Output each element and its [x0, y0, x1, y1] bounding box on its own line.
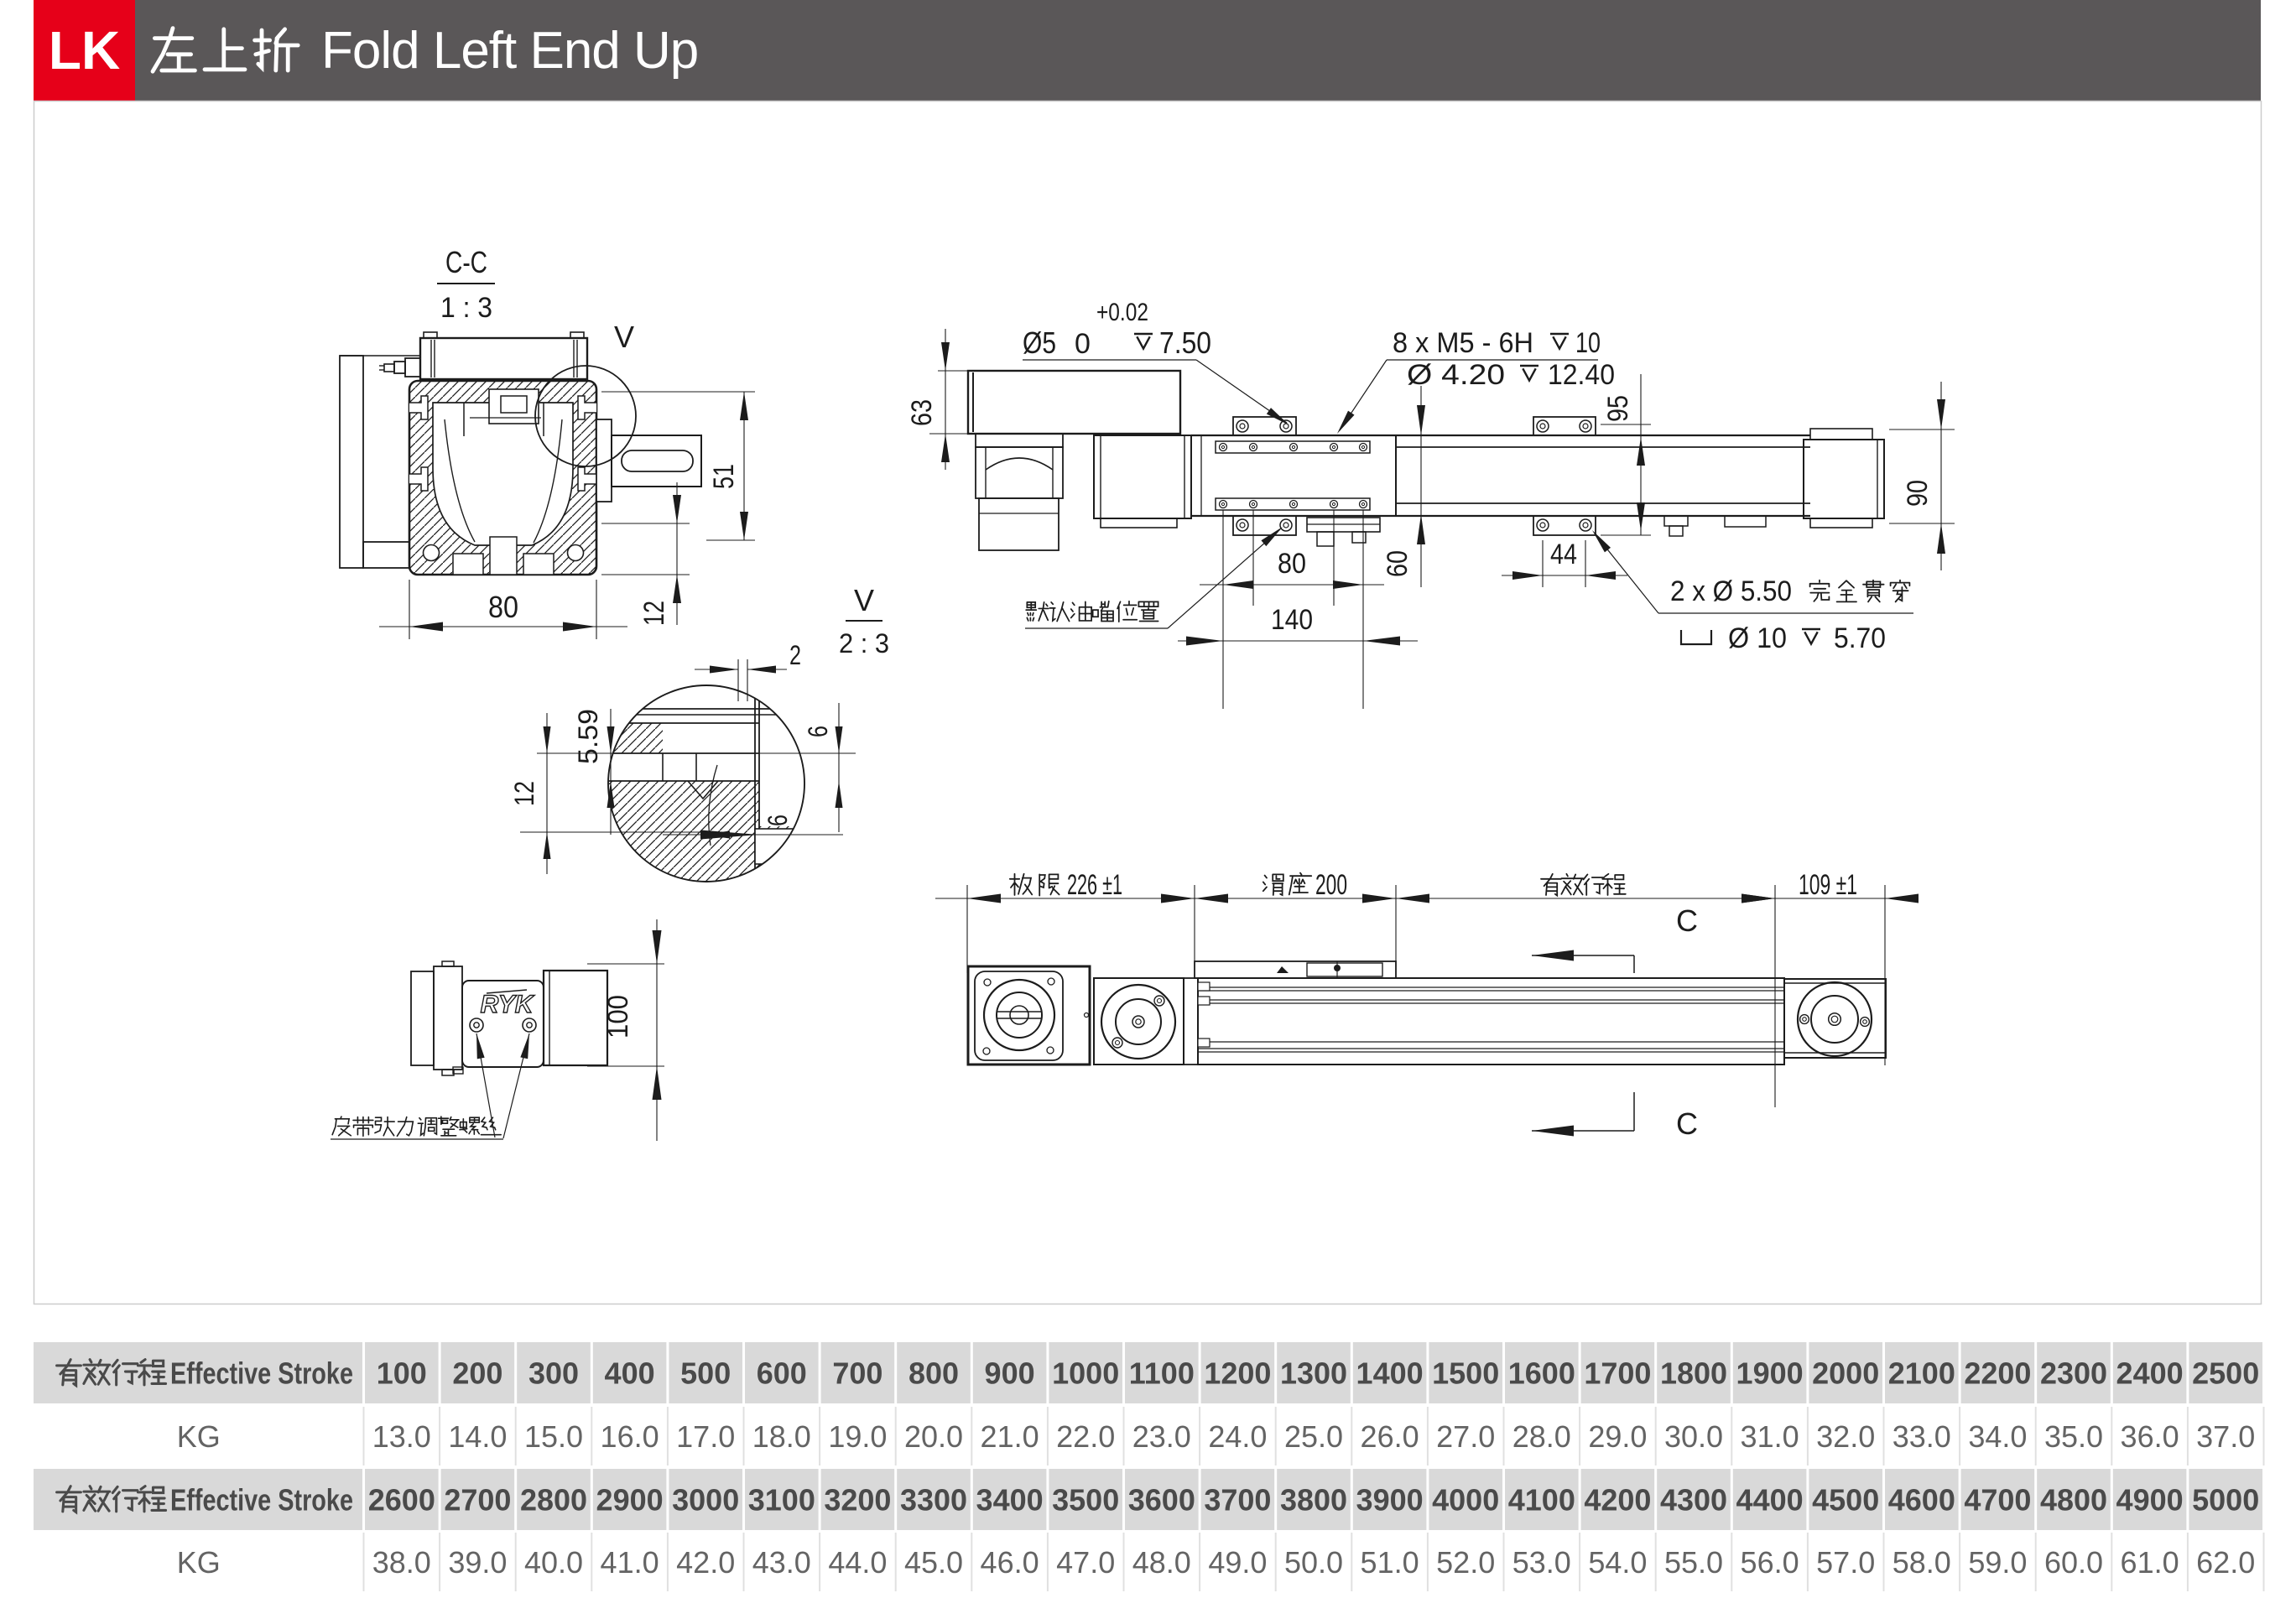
svg-text:34.0: 34.0	[1968, 1419, 2027, 1454]
svg-text:KG: KG	[177, 1419, 221, 1454]
svg-text:1 : 3: 1 : 3	[440, 292, 492, 324]
svg-text:2 : 3: 2 : 3	[839, 628, 889, 659]
svg-text:4100: 4100	[1508, 1483, 1575, 1517]
svg-text:5000: 5000	[2192, 1483, 2259, 1517]
svg-text:4800: 4800	[2040, 1483, 2107, 1517]
svg-text:2000: 2000	[1812, 1356, 1879, 1391]
svg-text:226 ±1: 226 ±1	[1067, 869, 1122, 901]
svg-text:2: 2	[789, 640, 801, 670]
svg-text:60: 60	[1382, 550, 1414, 577]
svg-text:57.0: 57.0	[1816, 1545, 1875, 1580]
svg-text:12.40: 12.40	[1548, 359, 1615, 391]
svg-text:200: 200	[452, 1356, 502, 1391]
svg-text:55.0: 55.0	[1664, 1545, 1723, 1580]
svg-text:38.0: 38.0	[372, 1545, 431, 1580]
svg-text:40.0: 40.0	[524, 1545, 583, 1580]
svg-text:4500: 4500	[1812, 1483, 1879, 1517]
svg-text:17.0: 17.0	[676, 1419, 735, 1454]
svg-text:10: 10	[1575, 327, 1601, 359]
svg-text:29.0: 29.0	[1588, 1419, 1647, 1454]
svg-text:12: 12	[509, 781, 539, 806]
svg-text:4000: 4000	[1432, 1483, 1499, 1517]
svg-text:1600: 1600	[1508, 1356, 1575, 1391]
svg-text:23.0: 23.0	[1132, 1419, 1191, 1454]
svg-text:26.0: 26.0	[1361, 1419, 1419, 1454]
svg-text:5.70: 5.70	[1834, 622, 1886, 654]
svg-text:60.0: 60.0	[2044, 1545, 2103, 1580]
svg-text:1200: 1200	[1204, 1356, 1271, 1391]
svg-text:Effective Stroke: Effective Stroke	[170, 1483, 353, 1517]
svg-text:3400: 3400	[976, 1483, 1044, 1517]
svg-text:100: 100	[377, 1356, 427, 1391]
svg-text:8 x M5 - 6H: 8 x M5 - 6H	[1393, 327, 1533, 359]
svg-text:3200: 3200	[824, 1483, 891, 1517]
svg-text:56.0: 56.0	[1741, 1545, 1799, 1580]
svg-text:27.0: 27.0	[1436, 1419, 1495, 1454]
svg-text:42.0: 42.0	[676, 1545, 735, 1580]
svg-text:200: 200	[1315, 869, 1347, 901]
svg-text:80: 80	[488, 590, 518, 624]
svg-text:19.0: 19.0	[828, 1419, 887, 1454]
svg-text:33.0: 33.0	[1893, 1419, 1951, 1454]
svg-text:59.0: 59.0	[1968, 1545, 2027, 1580]
svg-text:C: C	[1676, 903, 1698, 938]
svg-text:6: 6	[803, 726, 833, 737]
svg-text:18.0: 18.0	[752, 1419, 811, 1454]
svg-text:140: 140	[1271, 604, 1313, 636]
svg-text:44.0: 44.0	[828, 1545, 887, 1580]
svg-text:22.0: 22.0	[1056, 1419, 1115, 1454]
svg-text:C-C: C-C	[445, 245, 487, 279]
svg-text:3500: 3500	[1052, 1483, 1119, 1517]
svg-text:28.0: 28.0	[1512, 1419, 1571, 1454]
svg-text:1000: 1000	[1052, 1356, 1119, 1391]
svg-text:51.0: 51.0	[1361, 1545, 1419, 1580]
svg-text:95: 95	[1602, 395, 1634, 422]
svg-text:54.0: 54.0	[1588, 1545, 1647, 1580]
svg-text:49.0: 49.0	[1208, 1545, 1267, 1580]
svg-text:2700: 2700	[444, 1483, 511, 1517]
svg-text:3300: 3300	[900, 1483, 967, 1517]
svg-text:44: 44	[1550, 539, 1577, 570]
svg-text:2800: 2800	[520, 1483, 587, 1517]
svg-text:2500: 2500	[2192, 1356, 2259, 1391]
svg-text:V: V	[614, 320, 634, 354]
svg-text:2300: 2300	[2040, 1356, 2107, 1391]
svg-text:1500: 1500	[1432, 1356, 1499, 1391]
svg-text:300: 300	[528, 1356, 579, 1391]
svg-text:Fold Left End Up: Fold Left End Up	[321, 22, 698, 80]
svg-text:+0.02: +0.02	[1096, 299, 1148, 326]
svg-text:V: V	[854, 583, 874, 617]
svg-text:5.59: 5.59	[573, 709, 603, 764]
svg-text:50.0: 50.0	[1284, 1545, 1343, 1580]
svg-text:C: C	[1676, 1106, 1698, 1141]
svg-text:4900: 4900	[2116, 1483, 2184, 1517]
svg-text:80: 80	[1278, 548, 1306, 580]
svg-text:4600: 4600	[1888, 1483, 1955, 1517]
svg-text:Ø 4.20: Ø 4.20	[1407, 359, 1505, 391]
svg-text:51: 51	[708, 464, 740, 489]
svg-text:1300: 1300	[1280, 1356, 1347, 1391]
svg-text:2900: 2900	[596, 1483, 664, 1517]
svg-text:58.0: 58.0	[1893, 1545, 1951, 1580]
svg-text:4700: 4700	[1964, 1483, 2031, 1517]
svg-text:400: 400	[605, 1356, 655, 1391]
svg-text:45.0: 45.0	[904, 1545, 963, 1580]
svg-text:52.0: 52.0	[1436, 1545, 1495, 1580]
svg-text:1800: 1800	[1660, 1356, 1727, 1391]
svg-text:31.0: 31.0	[1741, 1419, 1799, 1454]
svg-text:48.0: 48.0	[1132, 1545, 1191, 1580]
svg-text:43.0: 43.0	[752, 1545, 811, 1580]
svg-text:3600: 3600	[1128, 1483, 1195, 1517]
svg-text:600: 600	[757, 1356, 807, 1391]
svg-text:2100: 2100	[1888, 1356, 1955, 1391]
svg-text:21.0: 21.0	[981, 1419, 1039, 1454]
svg-text:41.0: 41.0	[601, 1545, 659, 1580]
svg-text:Ø 10: Ø 10	[1728, 622, 1787, 654]
svg-text:24.0: 24.0	[1208, 1419, 1267, 1454]
svg-text:1900: 1900	[1736, 1356, 1804, 1391]
svg-text:Ø5: Ø5	[1023, 325, 1056, 360]
svg-text:39.0: 39.0	[448, 1545, 507, 1580]
svg-text:14.0: 14.0	[448, 1419, 507, 1454]
svg-text:RYK: RYK	[481, 991, 535, 1018]
svg-text:KG: KG	[177, 1545, 221, 1580]
svg-text:2200: 2200	[1964, 1356, 2031, 1391]
svg-text:36.0: 36.0	[2121, 1419, 2179, 1454]
svg-text:3100: 3100	[748, 1483, 815, 1517]
svg-text:25.0: 25.0	[1284, 1419, 1343, 1454]
svg-text:61.0: 61.0	[2121, 1545, 2179, 1580]
svg-text:4400: 4400	[1736, 1483, 1804, 1517]
svg-text:63: 63	[906, 399, 938, 426]
svg-text:12: 12	[638, 601, 670, 626]
svg-text:900: 900	[985, 1356, 1035, 1391]
svg-text:20.0: 20.0	[904, 1419, 963, 1454]
svg-text:35.0: 35.0	[2044, 1419, 2103, 1454]
svg-text:Effective Stroke: Effective Stroke	[170, 1356, 353, 1391]
svg-text:4300: 4300	[1660, 1483, 1727, 1517]
svg-text:62.0: 62.0	[2196, 1545, 2255, 1580]
svg-text:53.0: 53.0	[1512, 1545, 1571, 1580]
svg-text:2600: 2600	[368, 1483, 435, 1517]
svg-text:6: 6	[763, 815, 793, 826]
svg-text:2400: 2400	[2116, 1356, 2184, 1391]
svg-text:3700: 3700	[1204, 1483, 1271, 1517]
svg-text:1700: 1700	[1584, 1356, 1651, 1391]
svg-text:3800: 3800	[1280, 1483, 1347, 1517]
svg-text:47.0: 47.0	[1056, 1545, 1115, 1580]
svg-text:4200: 4200	[1584, 1483, 1651, 1517]
svg-text:3000: 3000	[672, 1483, 739, 1517]
svg-text:2 x Ø 5.50: 2 x Ø 5.50	[1670, 575, 1792, 607]
svg-text:1100: 1100	[1129, 1356, 1195, 1391]
svg-text:1400: 1400	[1356, 1356, 1424, 1391]
svg-text:3900: 3900	[1356, 1483, 1424, 1517]
svg-text:37.0: 37.0	[2196, 1419, 2255, 1454]
svg-text:109 ±1: 109 ±1	[1799, 869, 1857, 901]
svg-text:LK: LK	[49, 20, 120, 81]
svg-text:90: 90	[1902, 480, 1934, 507]
svg-text:13.0: 13.0	[372, 1419, 431, 1454]
svg-text:16.0: 16.0	[601, 1419, 659, 1454]
svg-text:30.0: 30.0	[1664, 1419, 1723, 1454]
svg-text:500: 500	[680, 1356, 731, 1391]
svg-text:15.0: 15.0	[524, 1419, 583, 1454]
svg-text:700: 700	[832, 1356, 882, 1391]
svg-text:800: 800	[909, 1356, 959, 1391]
svg-text:46.0: 46.0	[981, 1545, 1039, 1580]
svg-text:32.0: 32.0	[1816, 1419, 1875, 1454]
svg-text:7.50: 7.50	[1159, 325, 1211, 360]
svg-text:0: 0	[1075, 328, 1091, 360]
